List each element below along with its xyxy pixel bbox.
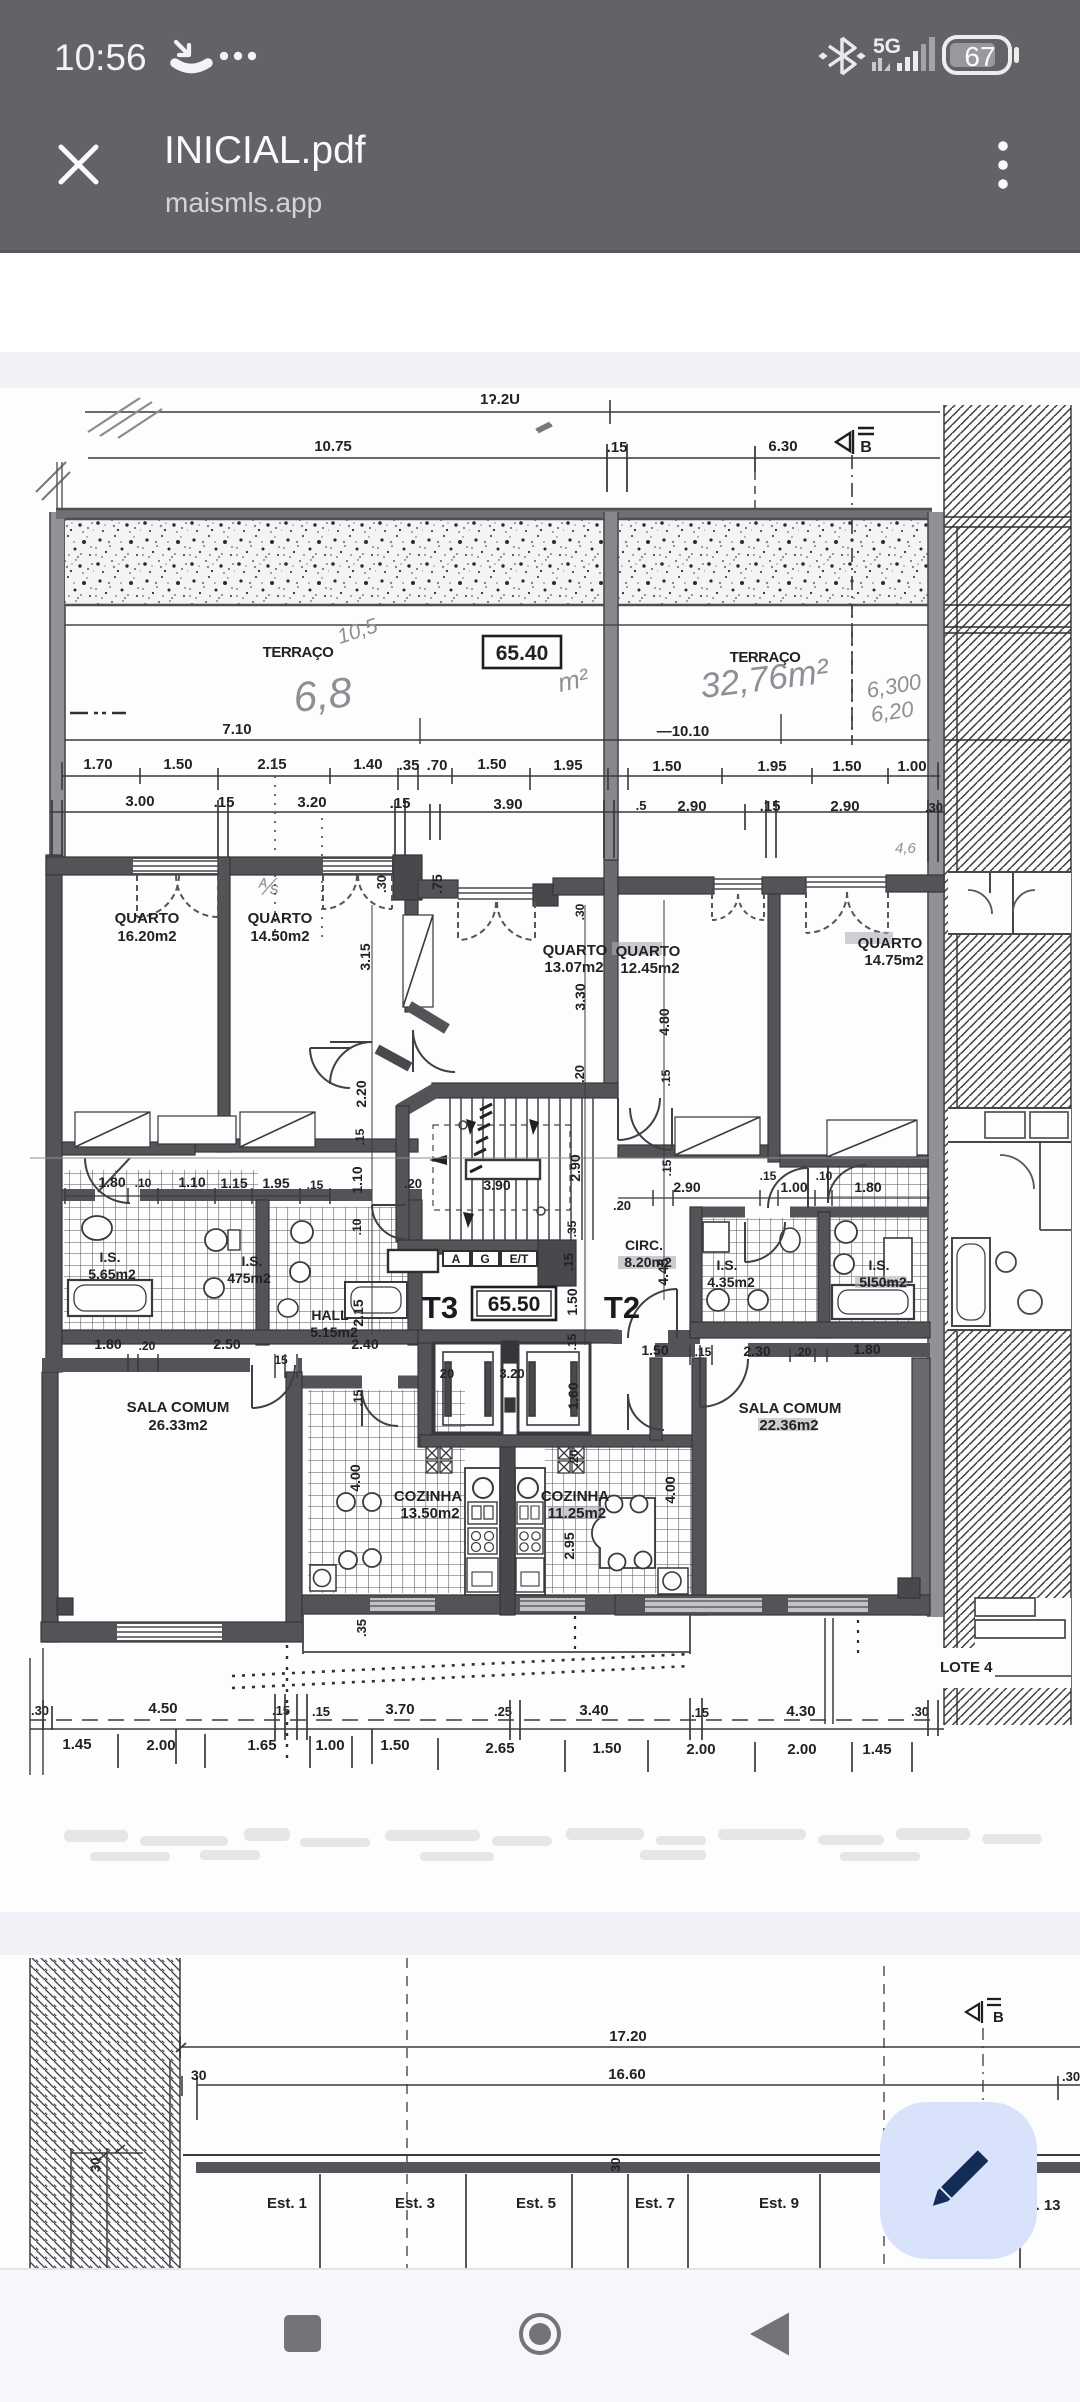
svg-text:QUARTO: QUARTO	[858, 935, 923, 952]
svg-text:.15: .15	[691, 1705, 709, 1720]
svg-text:.20: .20	[613, 1198, 631, 1213]
svg-text:14.50m2: 14.50m2	[250, 928, 309, 945]
svg-text:I.S.: I.S.	[716, 1257, 737, 1273]
svg-text:11.25m2: 11.25m2	[548, 1505, 606, 1522]
svg-text:.35: .35	[399, 757, 420, 774]
svg-text:2.00: 2.00	[146, 1737, 175, 1754]
svg-text:Est. 3: Est. 3	[395, 2195, 435, 2212]
svg-text:3.40: 3.40	[579, 1702, 608, 1719]
svg-text:.20: .20	[567, 1449, 581, 1466]
svg-text:1.50: 1.50	[564, 1288, 580, 1315]
svg-text:2.00: 2.00	[787, 1741, 816, 1758]
svg-text:2.90: 2.90	[567, 1154, 583, 1181]
svg-text:475m2: 475m2	[227, 1270, 271, 1286]
svg-text:13.07m2: 13.07m2	[544, 959, 603, 976]
svg-text:HALL: HALL	[311, 1307, 349, 1323]
svg-text:2.15: 2.15	[350, 1299, 366, 1326]
svg-text:2.90: 2.90	[830, 798, 859, 815]
svg-text:26.33m2: 26.33m2	[148, 1417, 207, 1434]
svg-text:T3: T3	[422, 1290, 458, 1325]
svg-text:1.40: 1.40	[353, 756, 382, 773]
svg-text:I.S.: I.S.	[99, 1249, 120, 1265]
svg-text:.15: .15	[659, 1069, 673, 1086]
svg-text:I.S.: I.S.	[241, 1253, 262, 1269]
svg-text:30: 30	[88, 2158, 103, 2172]
svg-text:1.10: 1.10	[349, 1166, 365, 1193]
svg-text:COZINHA: COZINHA	[541, 1488, 609, 1505]
svg-text:2.00: 2.00	[686, 1741, 715, 1758]
svg-text:1.45: 1.45	[862, 1741, 891, 1758]
svg-text:2.50: 2.50	[213, 1336, 240, 1352]
svg-text:m²: m²	[555, 662, 592, 698]
svg-text:SALA COMUM: SALA COMUM	[127, 1399, 230, 1416]
svg-text:.15: .15	[214, 794, 235, 811]
svg-text:.30: .30	[374, 875, 389, 893]
svg-text:1.15: 1.15	[220, 1175, 247, 1191]
svg-text:3.30: 3.30	[572, 983, 588, 1010]
svg-text:—10.10: —10.10	[657, 723, 710, 740]
svg-text:17.20: 17.20	[609, 2028, 647, 2045]
svg-text:3.70: 3.70	[385, 1701, 414, 1718]
svg-text:QUARTO: QUARTO	[616, 943, 681, 960]
svg-text:3.00: 3.00	[125, 793, 154, 810]
svg-text:5G: 5G	[873, 35, 901, 58]
svg-text:.30: .30	[1062, 2069, 1080, 2084]
svg-text:Est. 7: Est. 7	[635, 2195, 675, 2212]
svg-text:67: 67	[964, 41, 995, 72]
svg-text:.10: .10	[135, 1176, 152, 1190]
svg-text:10:56: 10:56	[54, 37, 147, 78]
svg-text:QUARTO: QUARTO	[543, 942, 608, 959]
svg-text:1.65: 1.65	[247, 1737, 276, 1754]
svg-text:T2: T2	[604, 1290, 640, 1325]
svg-text:.35: .35	[354, 1619, 369, 1637]
svg-text:65.40: 65.40	[496, 642, 549, 665]
svg-text:2.90: 2.90	[673, 1179, 700, 1195]
svg-text:⅍: ⅍	[258, 874, 279, 899]
svg-text:QUARTO: QUARTO	[248, 910, 313, 927]
svg-text:Est. 9: Est. 9	[759, 2195, 799, 2212]
svg-text:20: 20	[440, 1366, 454, 1381]
svg-text:.5: .5	[636, 798, 647, 813]
svg-text:.15: .15	[390, 795, 411, 812]
svg-text:1.50: 1.50	[163, 756, 192, 773]
svg-text:2.30: 2.30	[743, 1343, 770, 1359]
svg-text:1.60: 1.60	[565, 1382, 581, 1409]
svg-text:5l50m2: 5l50m2	[859, 1274, 907, 1290]
svg-text:Est. 5: Est. 5	[516, 2195, 556, 2212]
svg-text:7.10: 7.10	[222, 721, 251, 738]
svg-text:3.20: 3.20	[499, 1366, 524, 1381]
svg-text:2.65: 2.65	[485, 1740, 514, 1757]
svg-text:.15: .15	[307, 1178, 324, 1192]
svg-text:16.20m2: 16.20m2	[117, 928, 176, 945]
svg-text:E/T: E/T	[510, 1252, 529, 1266]
svg-text:1.70: 1.70	[83, 756, 112, 773]
svg-text:COZINHA: COZINHA	[394, 1488, 462, 1505]
svg-text:QUARTO: QUARTO	[115, 910, 180, 927]
svg-text:CIRC.: CIRC.	[625, 1237, 663, 1253]
svg-text:. 13: . 13	[1035, 2197, 1060, 2214]
svg-text:4,6: 4,6	[895, 840, 917, 857]
svg-text:2.40: 2.40	[351, 1336, 378, 1352]
svg-text:1.50: 1.50	[652, 758, 681, 775]
svg-text:10,5: 10,5	[334, 614, 380, 649]
svg-text:maismls.app: maismls.app	[165, 187, 322, 218]
svg-text:.10: .10	[816, 1169, 833, 1183]
svg-text:.75: .75	[429, 874, 445, 894]
svg-text:14.75m2: 14.75m2	[864, 952, 923, 969]
svg-text:1.00: 1.00	[897, 758, 926, 775]
svg-text:1.80: 1.80	[853, 1341, 880, 1357]
svg-text:.15: .15	[760, 1169, 777, 1183]
svg-text:A: A	[452, 1252, 461, 1266]
svg-text:16.60: 16.60	[608, 2066, 646, 2083]
svg-text:1.95: 1.95	[262, 1175, 289, 1191]
svg-text:.30: .30	[925, 800, 943, 815]
svg-text:.15: .15	[351, 1389, 365, 1406]
svg-text:32,76m²: 32,76m²	[698, 651, 832, 706]
svg-text:2.95: 2.95	[561, 1532, 577, 1559]
svg-text:1.80: 1.80	[854, 1179, 881, 1195]
svg-text:3.90: 3.90	[483, 1177, 510, 1193]
svg-text:22.36m2: 22.36m2	[759, 1417, 818, 1434]
svg-text:.15: .15	[760, 798, 781, 815]
svg-text:.15: .15	[607, 439, 628, 456]
svg-text:1.10: 1.10	[178, 1174, 205, 1190]
svg-text:.20: .20	[795, 1345, 812, 1359]
svg-text:3.15: 3.15	[357, 943, 373, 970]
svg-text:.15: .15	[353, 1128, 367, 1145]
svg-text:1.80: 1.80	[98, 1174, 125, 1190]
svg-text:15: 15	[274, 1353, 288, 1367]
svg-text:1.50: 1.50	[592, 1740, 621, 1757]
svg-text:4.50: 4.50	[148, 1700, 177, 1717]
svg-text:.15: .15	[565, 1333, 579, 1350]
svg-text:65.50: 65.50	[488, 1293, 541, 1316]
svg-text:B: B	[860, 439, 872, 456]
svg-text:4.30: 4.30	[786, 1703, 815, 1720]
svg-text:30: 30	[608, 2158, 623, 2172]
svg-text:12.45m2: 12.45m2	[620, 960, 679, 977]
svg-text:2.15: 2.15	[257, 756, 286, 773]
svg-text:.30: .30	[911, 1704, 929, 1719]
svg-text:G: G	[480, 1252, 489, 1266]
svg-text:2.20: 2.20	[353, 1080, 369, 1107]
svg-text:Est. 1: Est. 1	[267, 2195, 307, 2212]
svg-text:1.50: 1.50	[477, 756, 506, 773]
svg-text:6,20: 6,20	[869, 696, 916, 727]
svg-text:1.50: 1.50	[641, 1342, 668, 1358]
svg-text:1.00: 1.00	[315, 1737, 344, 1754]
svg-text:1.50: 1.50	[380, 1737, 409, 1754]
svg-text:.35: .35	[565, 1220, 579, 1237]
svg-text:1.45: 1.45	[62, 1736, 91, 1753]
svg-text:.15: .15	[695, 1345, 712, 1359]
svg-text:.15: .15	[312, 1704, 330, 1719]
svg-text:3.20: 3.20	[297, 794, 326, 811]
svg-text:4.45: 4.45	[655, 1258, 671, 1285]
svg-text:6,8: 6,8	[291, 668, 355, 721]
svg-text:.20: .20	[404, 1176, 422, 1191]
svg-text:LOTE 4: LOTE 4	[940, 1659, 993, 1676]
svg-text:.10: .10	[350, 1218, 364, 1235]
svg-text:30: 30	[191, 2067, 207, 2083]
svg-text:TERRAÇO: TERRAÇO	[263, 644, 334, 661]
svg-text:I.S.: I.S.	[868, 1257, 889, 1273]
svg-text:1ʔ.2U: 1ʔ.2U	[480, 391, 520, 408]
svg-text:1.95: 1.95	[757, 758, 786, 775]
svg-text:1.80: 1.80	[94, 1336, 121, 1352]
svg-text:10.75: 10.75	[314, 438, 352, 455]
svg-text:13.50m2: 13.50m2	[400, 1505, 459, 1522]
svg-text:1.50: 1.50	[832, 758, 861, 775]
svg-text:INICIAL.pdf: INICIAL.pdf	[164, 129, 366, 172]
svg-text:.15: .15	[561, 1253, 576, 1271]
svg-text:3.90: 3.90	[493, 796, 522, 813]
svg-text:.20: .20	[139, 1339, 156, 1353]
svg-text:4.00: 4.00	[347, 1464, 363, 1491]
svg-text:SALA COMUM: SALA COMUM	[739, 1400, 842, 1417]
svg-text:B: B	[993, 2009, 1004, 2026]
svg-text:5.65m2: 5.65m2	[88, 1266, 136, 1282]
svg-text:.15: .15	[660, 1159, 674, 1176]
svg-text:1.00: 1.00	[780, 1179, 807, 1195]
svg-text:4.00: 4.00	[662, 1476, 678, 1503]
svg-text:.30: .30	[31, 1703, 49, 1718]
svg-text:.70: .70	[427, 757, 448, 774]
svg-text:1.95: 1.95	[553, 757, 582, 774]
svg-text:6.30: 6.30	[768, 438, 797, 455]
svg-text:2.90: 2.90	[677, 798, 706, 815]
svg-text:4.35m2: 4.35m2	[707, 1274, 755, 1290]
